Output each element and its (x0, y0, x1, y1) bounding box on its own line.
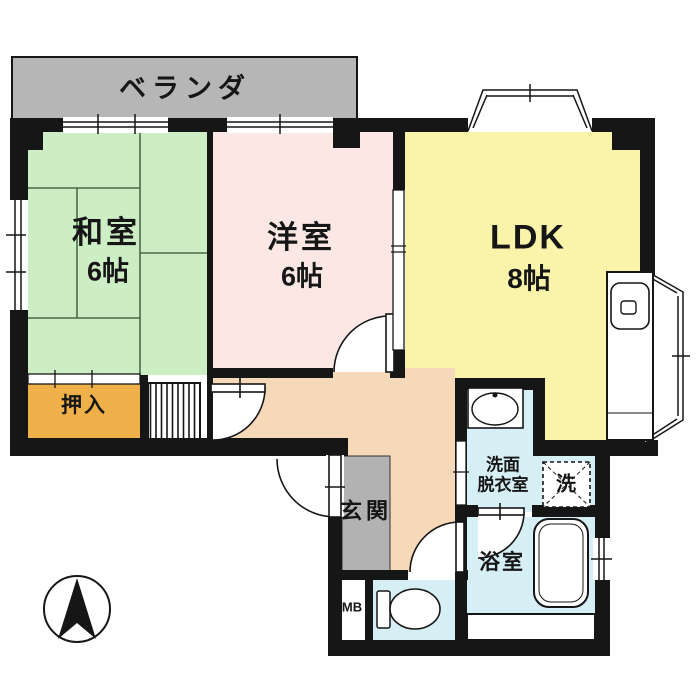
washroom-label: 洗面 脱衣室 (478, 455, 529, 494)
toilet-icon (377, 589, 440, 629)
bath-sink-icon (468, 388, 523, 428)
ldk-sliding-door (391, 190, 406, 350)
washroom-label-line1: 洗面 (478, 455, 529, 475)
ldk-bay-window (468, 84, 592, 132)
genkan-label: 玄関 (340, 498, 392, 523)
compass-icon (44, 576, 110, 642)
oshiire-label: 押入 (61, 394, 107, 418)
youshitsu-label: 洋室 (267, 220, 335, 256)
floor-plan: ベランダ 和室 6帖 洋室 6帖 LDK 8帖 押入 玄関 洗面 脱衣室 洗 浴… (0, 0, 700, 700)
laundry-label: 洗 (556, 474, 576, 497)
service-ledge (467, 614, 595, 640)
meter-box-label: MB (342, 601, 362, 616)
front-door (277, 455, 345, 517)
ldk-size-label: 8帖 (507, 263, 551, 295)
washitsu-veranda-window (63, 114, 168, 134)
washroom-label-line2: 脱衣室 (478, 475, 529, 495)
youshitsu-size-label: 6帖 (281, 261, 323, 292)
washitsu-label: 和室 (72, 215, 140, 251)
washroom-sliding-door (453, 441, 469, 505)
floor-plan-drawing (0, 0, 700, 700)
kitchen-sink-icon (611, 283, 649, 329)
ldk-label: LDK (490, 218, 566, 257)
washitsu-side-window (6, 200, 28, 310)
bathroom-window (591, 538, 612, 580)
veranda-label: ベランダ (119, 73, 251, 104)
youshitsu-veranda-window (227, 114, 333, 134)
bathroom-label: 浴室 (479, 551, 525, 575)
bathtub-icon (534, 519, 588, 607)
washitsu-size-label: 6帖 (87, 256, 129, 287)
storage-stripes (148, 383, 200, 440)
